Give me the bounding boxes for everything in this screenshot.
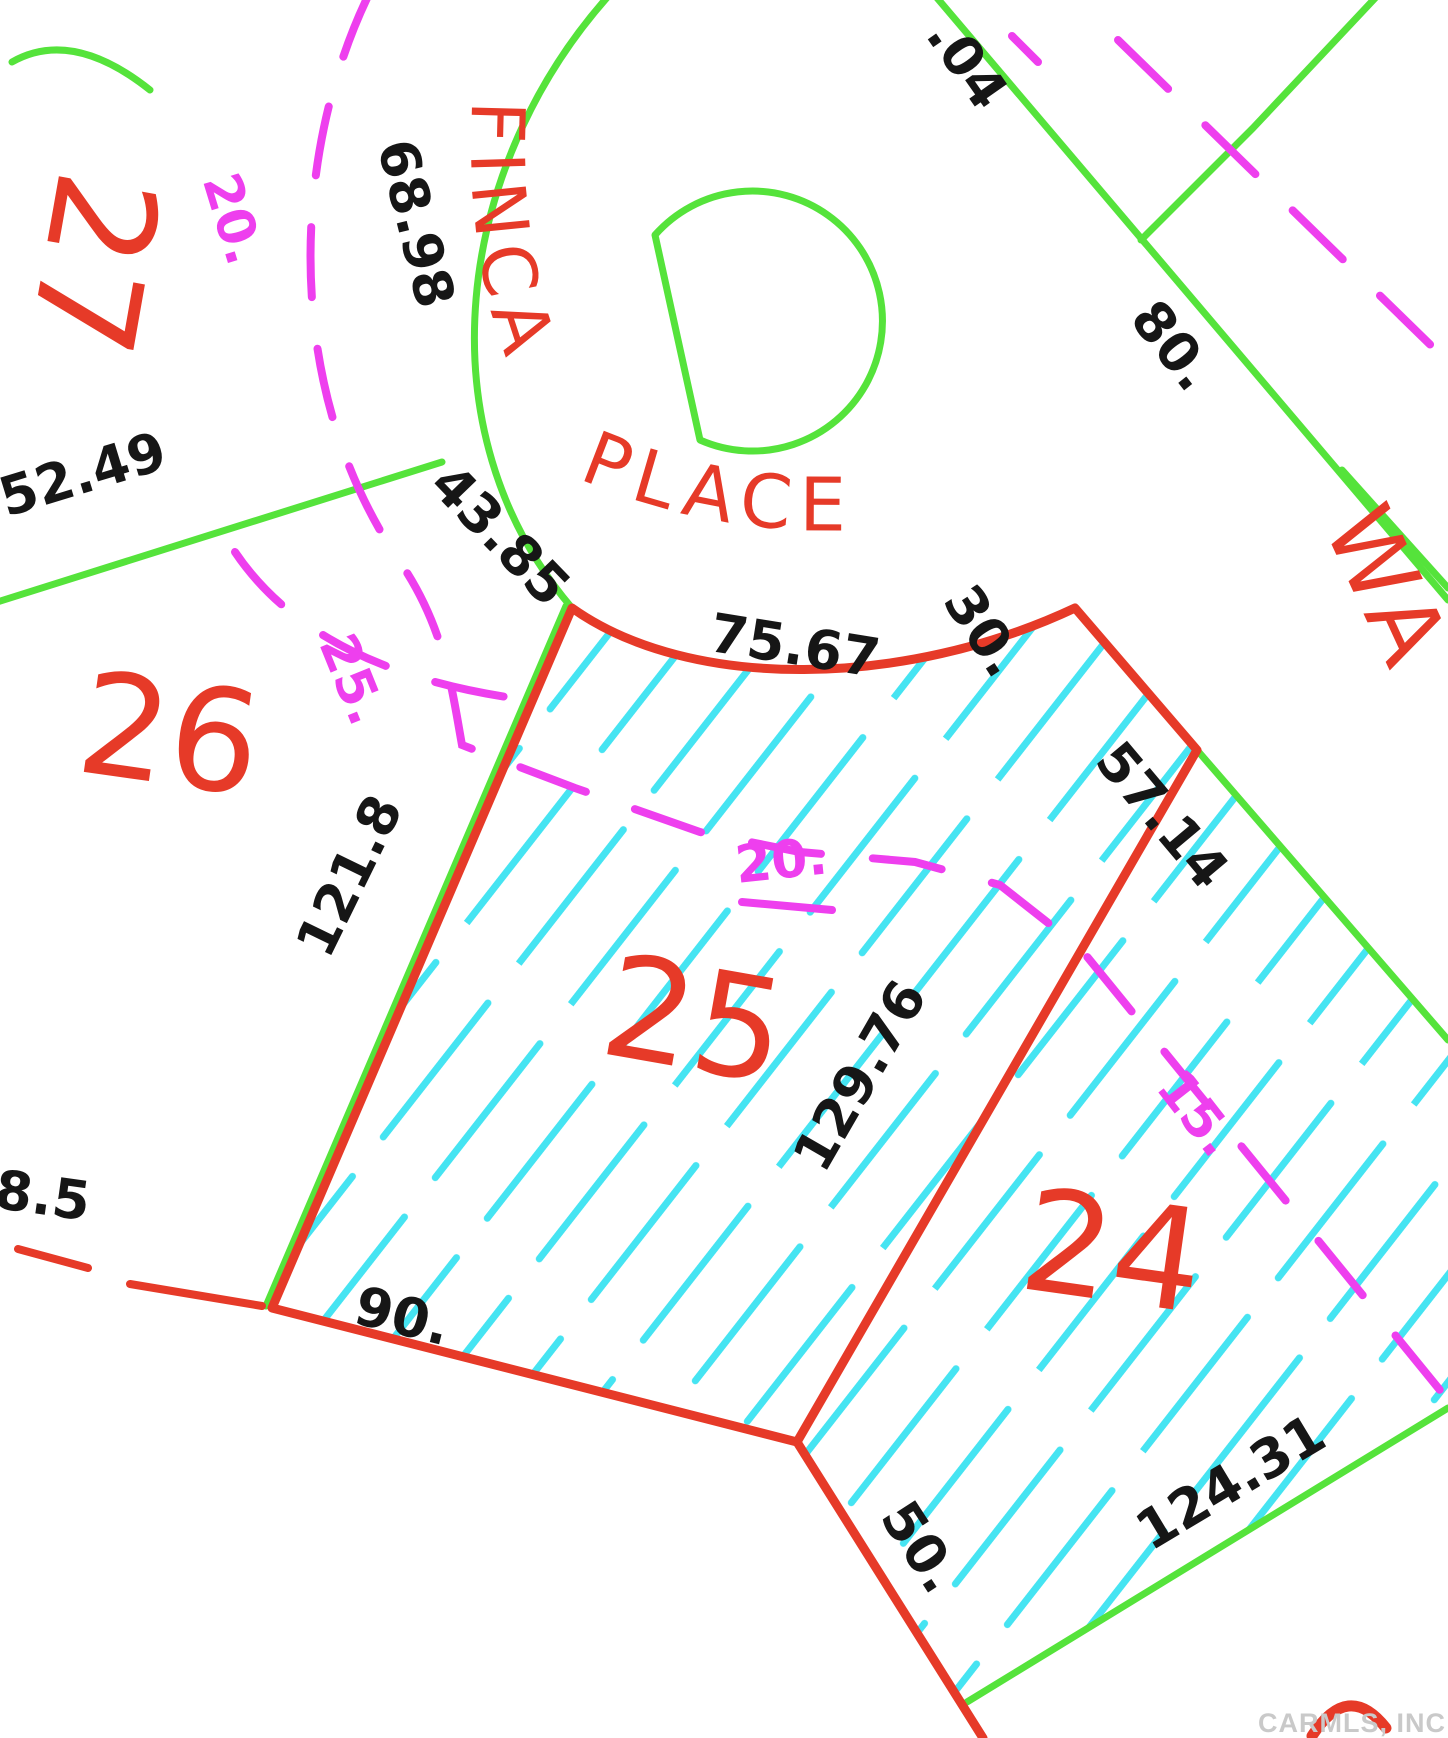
dim-80: 80. (1118, 289, 1227, 403)
dim-8-5: 8.5 (0, 1158, 94, 1234)
setback-topright-short-dash (1012, 36, 1038, 62)
dim-121-8: 121.8 (284, 785, 416, 966)
dim-04: .04 (914, 6, 1020, 121)
lot-number-27: 27 (0, 160, 190, 367)
lot-number-25: 25 (591, 923, 798, 1117)
top-left-street-arc (12, 50, 150, 90)
dim-52-49: 52.49 (0, 419, 173, 529)
plat-map-canvas: 68.98 52.49 43.85 75.67 30. .04 80. 57.1… (0, 0, 1448, 1738)
dim-68-98: 68.98 (365, 133, 467, 314)
dim-8-5-leader-b (130, 1284, 262, 1306)
top-right-lot-corner-line (1141, 0, 1378, 240)
plat-map: 68.98 52.49 43.85 75.67 30. .04 80. 57.1… (0, 0, 1448, 1738)
street-name-finca: FINCA (453, 100, 574, 374)
lot-number-26: 26 (69, 641, 271, 830)
dim-8-5-leader-a (18, 1249, 88, 1268)
lot-number-24: 24 (1012, 1158, 1214, 1347)
setback-25-left-label: 25. (307, 626, 397, 734)
culdesac-island-shape (655, 191, 882, 451)
watermark: CARMLS, INC (1258, 1708, 1446, 1738)
street-name-way: WA (1302, 490, 1448, 688)
setback-20-left-label: 20. (190, 166, 274, 272)
setback-20-mid-label: 20. (732, 826, 830, 895)
